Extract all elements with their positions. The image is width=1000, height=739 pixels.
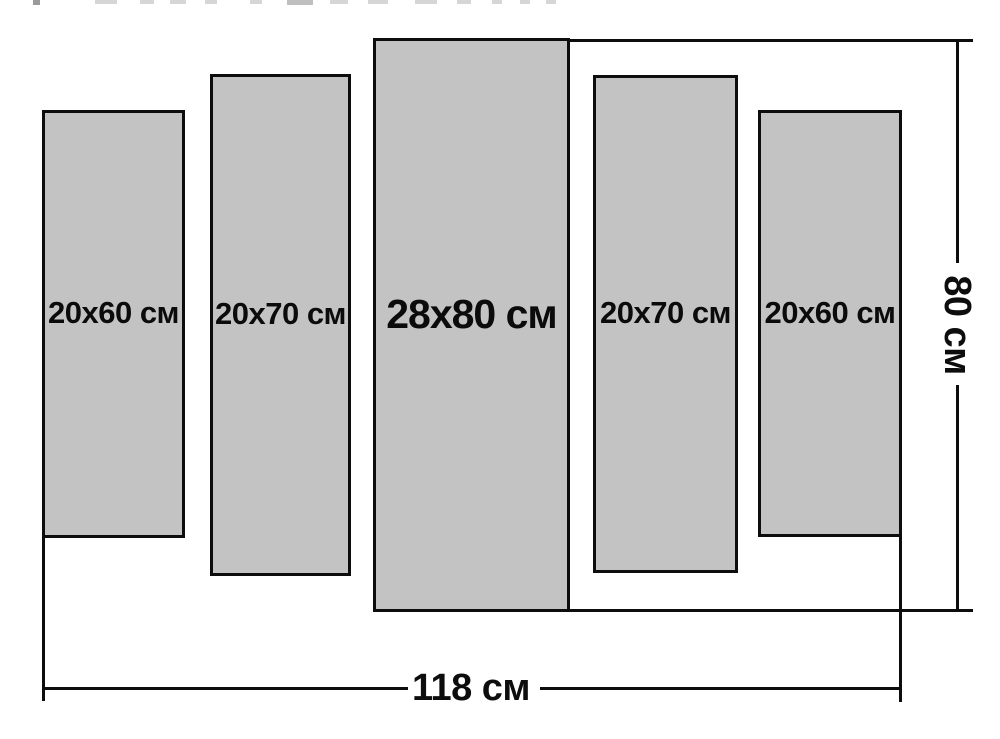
panel-5-size-label: 20x60 см bbox=[765, 295, 896, 331]
height-dim-line-lower-segment bbox=[956, 385, 959, 612]
cropped-text-fragment bbox=[546, 0, 556, 4]
panel-5-far-right: 20x60 см bbox=[758, 110, 902, 537]
cropped-text-fragment bbox=[250, 0, 262, 4]
modular-painting-size-diagram: 20x60 см 20x70 см 28x80 см 20x70 см 20x6… bbox=[0, 0, 1000, 739]
cropped-text-fragment bbox=[95, 0, 117, 4]
panel-2-left: 20x70 см bbox=[210, 74, 351, 576]
panel-4-size-label: 20x70 см bbox=[600, 295, 731, 331]
cropped-text-fragment bbox=[205, 0, 217, 4]
total-width-label: 118 см bbox=[371, 665, 571, 711]
cropped-text-fragment bbox=[33, 0, 40, 5]
panel-4-right: 20x70 см bbox=[593, 75, 738, 573]
height-dim-top-extension-line bbox=[567, 39, 973, 42]
cropped-text-fragment bbox=[368, 0, 388, 4]
width-dim-line-right-segment bbox=[540, 687, 902, 690]
panel-1-size-label: 20x60 см bbox=[48, 295, 179, 331]
panel-2-size-label: 20x70 см bbox=[215, 296, 346, 332]
total-height-label: 80 см bbox=[936, 245, 978, 405]
panel-3-size-label: 28x80 см bbox=[386, 291, 557, 338]
cropped-text-fragment bbox=[170, 0, 186, 4]
cropped-text-fragment bbox=[520, 0, 530, 4]
cropped-text-fragment bbox=[140, 0, 154, 4]
height-dim-bottom-extension-line bbox=[567, 609, 973, 612]
cropped-text-fragment bbox=[287, 0, 313, 5]
panel-3-center: 28x80 см bbox=[373, 38, 570, 612]
panel-1-far-left: 20x60 см bbox=[42, 110, 185, 538]
width-dim-left-extension-line bbox=[42, 538, 45, 701]
cropped-text-fragment bbox=[457, 0, 471, 4]
width-dim-line-left-segment bbox=[42, 687, 408, 690]
width-dim-right-extension-line bbox=[899, 537, 902, 702]
cropped-text-fragment bbox=[492, 0, 502, 4]
cropped-text-fragment bbox=[415, 0, 437, 4]
cropped-text-fragment bbox=[330, 0, 348, 4]
height-dim-line-upper-segment bbox=[956, 39, 959, 263]
